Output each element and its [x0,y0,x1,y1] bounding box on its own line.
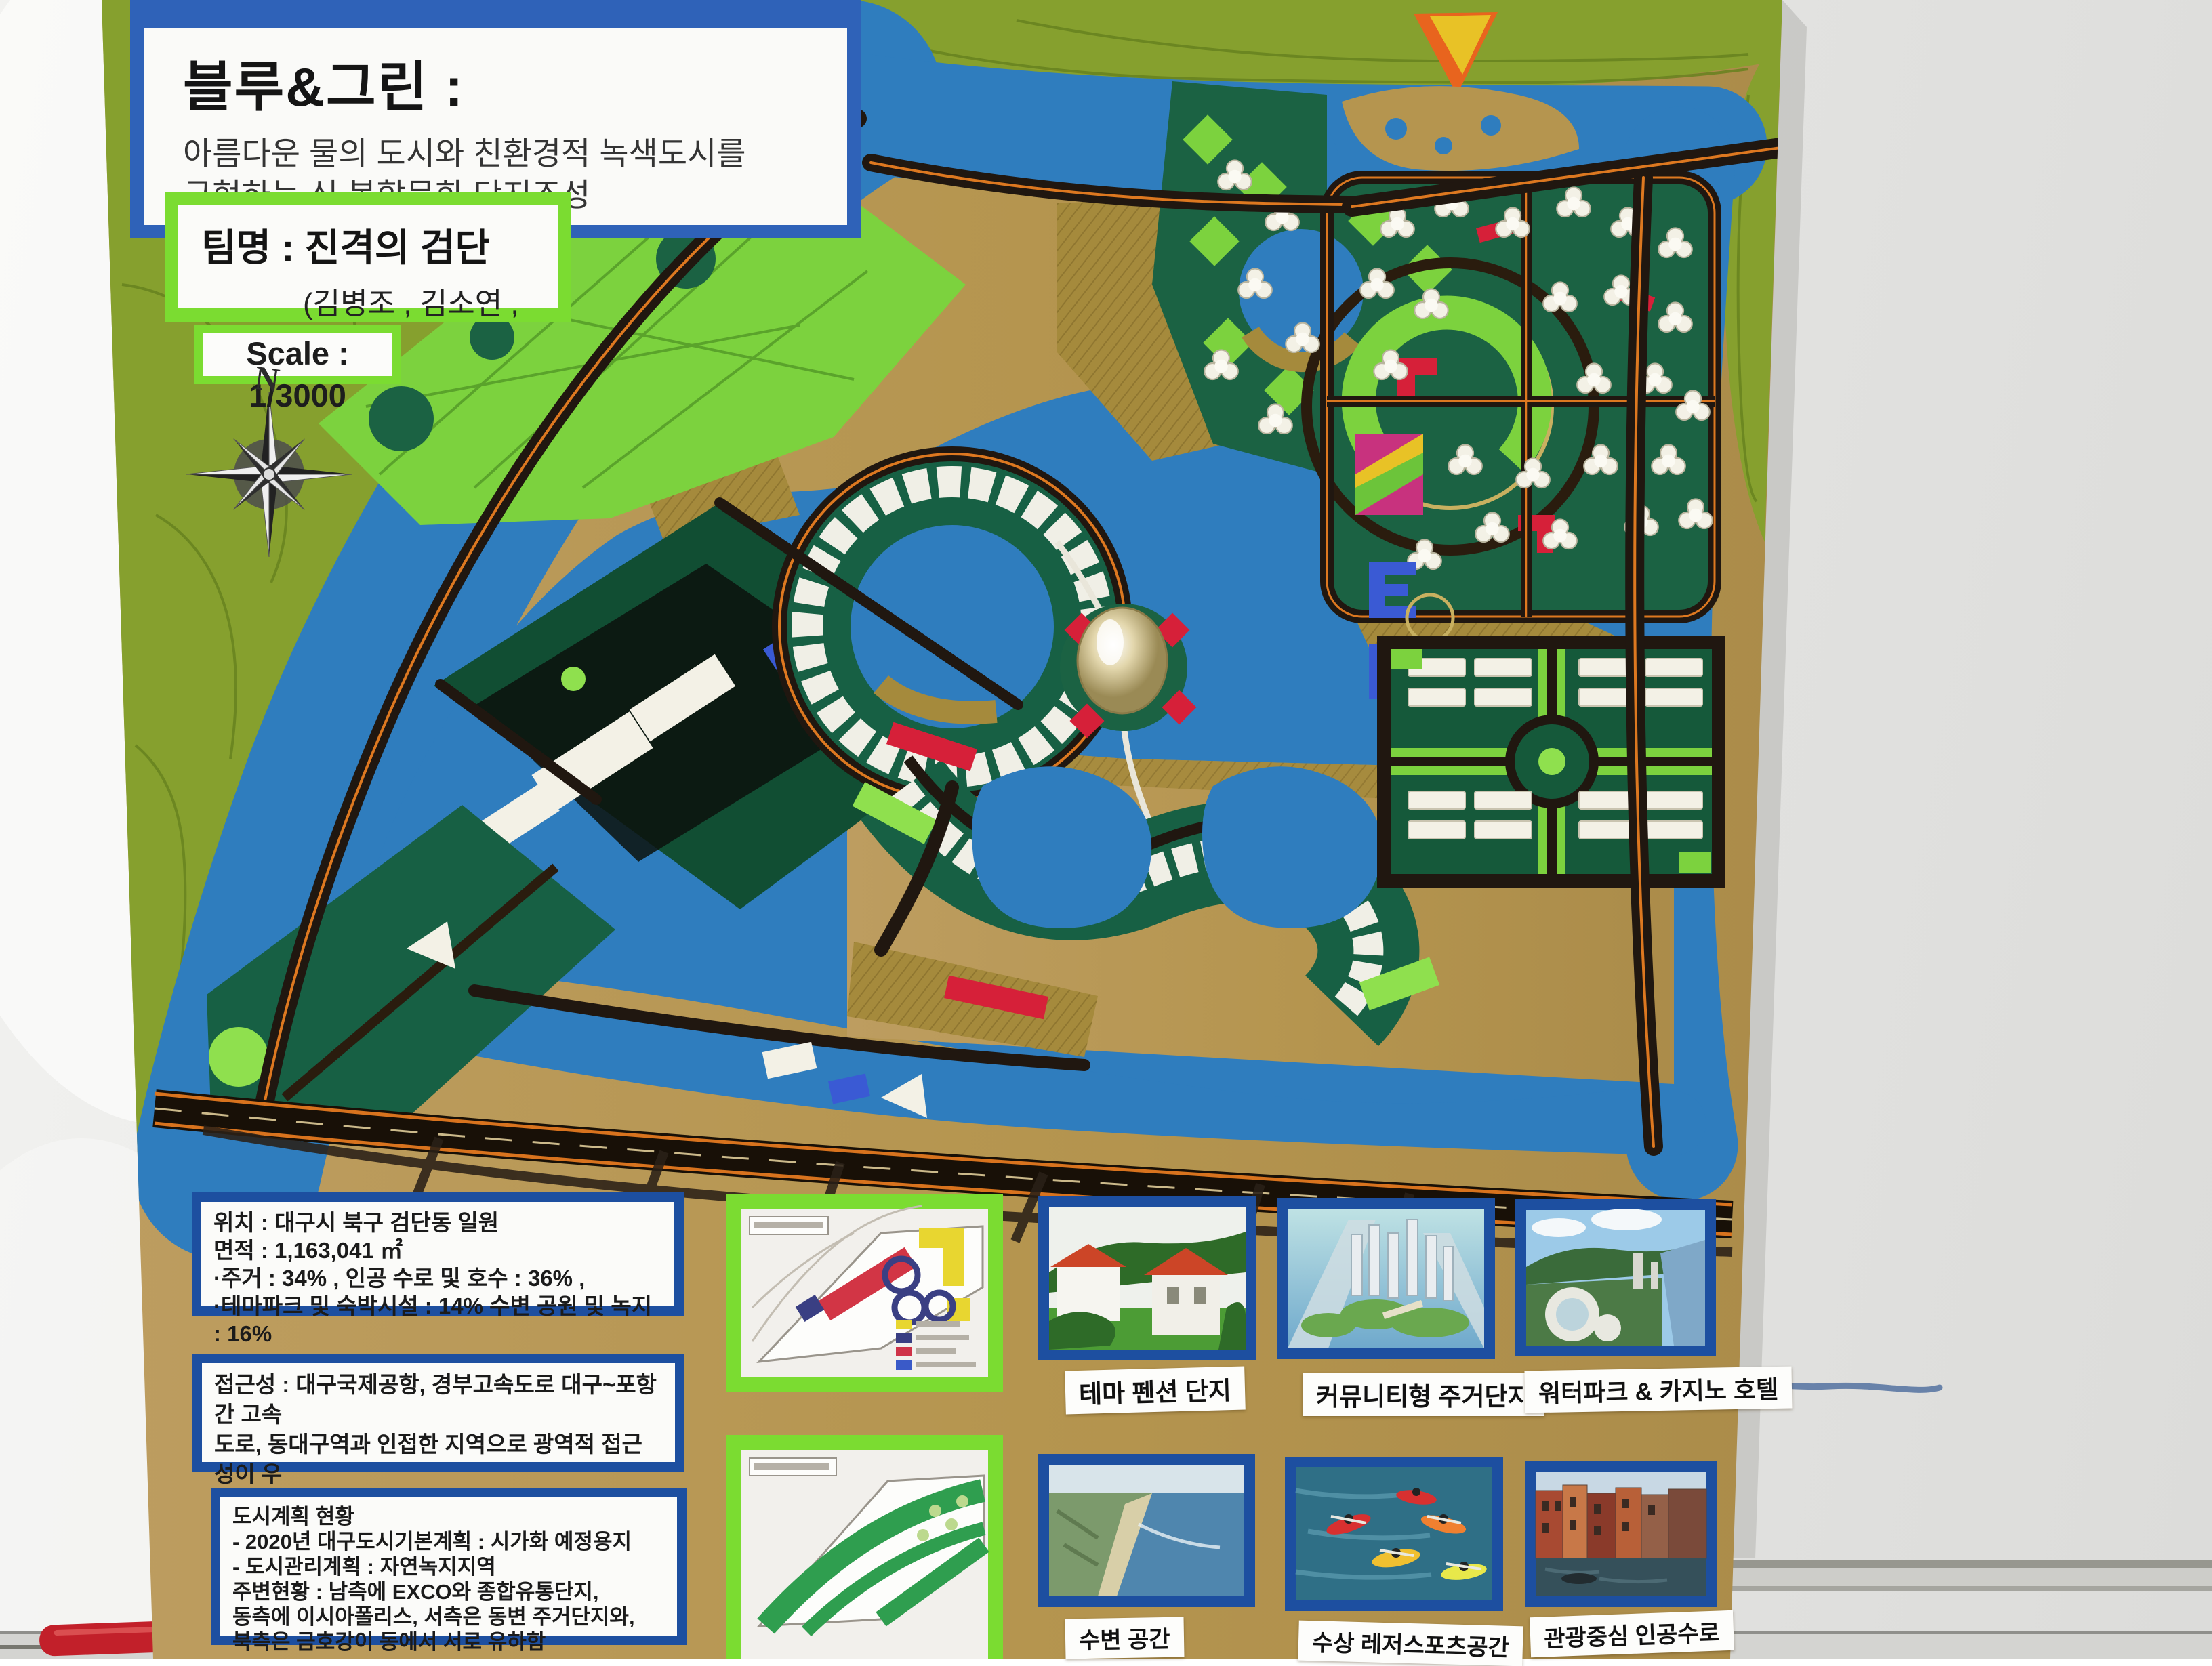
info-line: 도로, 동대구역과 인접한 지역으로 광역적 접근성이 우 [214,1430,663,1489]
photo-caption: 수상 레저스포츠공간 [1298,1621,1523,1666]
info-line: 동측에 이시아폴리스, 서측은 동변 주거단지와, [232,1604,665,1629]
photo-caption: 테마 펜션 단지 [1065,1367,1245,1415]
info-line: 북측은 금호강이 동에서 서로 유하함 [232,1629,665,1654]
team-name: 팀명 : 진격의 검단 [201,217,540,272]
info-line: - 도시관리계획 : 자연녹지지역 [232,1554,665,1579]
photo-caption: 워터파크 & 카지노 호텔 [1524,1367,1792,1413]
photo-caption: 관광중심 인공수로 [1530,1610,1734,1657]
team-box: 팀명 : 진격의 검단 (김병조 , 김소연 , 윤종민) [165,192,571,322]
commercial-grid [1384,642,1719,881]
info-line: - 2020년 대구도시기본계획 : 시가화 예정용지 [232,1529,665,1554]
urban-plan-box: 도시계획 현황 - 2020년 대구도시기본계획 : 시가화 예정용지 - 도시… [211,1488,687,1645]
site-info-box: 위치 : 대구시 북구 검단동 일원 면적 : 1,163,041 ㎡ ·주거 … [192,1192,684,1316]
photo-theme-pension [1038,1196,1256,1360]
photo-waterfront [1038,1454,1255,1607]
title-line-1: 아름다운 물의 도시와 친환경적 녹색도시를 [183,133,827,174]
info-line: 면적 : 1,163,041 ㎡ [213,1236,662,1264]
photo-leisure-sports [1285,1457,1503,1611]
photo-caption: 수변 공간 [1065,1617,1184,1659]
whiteboard-scene: 블루&그린 : 아름다운 물의 도시와 친환경적 녹색도시를 구현하는 신 복합… [0,0,2212,1659]
photo-canal-town [1525,1461,1717,1607]
info-line: 접근성 : 대구국제공항, 경부고속도로 대구~포항간 고속 [214,1370,663,1430]
landuse-diagram [726,1194,1003,1392]
photo-waterpark-hotel [1515,1199,1716,1356]
project-title: 블루&그린 : [183,43,827,122]
info-line: ·테마파크 및 숙박시설 : 14% 수변 공원 및 녹지 : 16% [213,1292,662,1348]
info-line: 주변현황 : 남측에 EXCO와 종합유통단지, [232,1579,665,1604]
info-line: 위치 : 대구시 북구 검단동 일원 [213,1209,662,1236]
photo-caption: 커뮤니티형 주거단지 [1303,1373,1544,1416]
scale-label: Scale : 1/3000 [194,325,401,384]
info-line: ·주거 : 34% , 인공 수로 및 호수 : 36% , [213,1264,662,1292]
info-line: 도시계획 현황 [232,1504,665,1529]
greenway-diagram [726,1435,1003,1659]
accessibility-box: 접근성 : 대구국제공항, 경부고속도로 대구~포항간 고속 도로, 동대구역과… [192,1354,684,1472]
photo-community-housing [1277,1198,1495,1359]
